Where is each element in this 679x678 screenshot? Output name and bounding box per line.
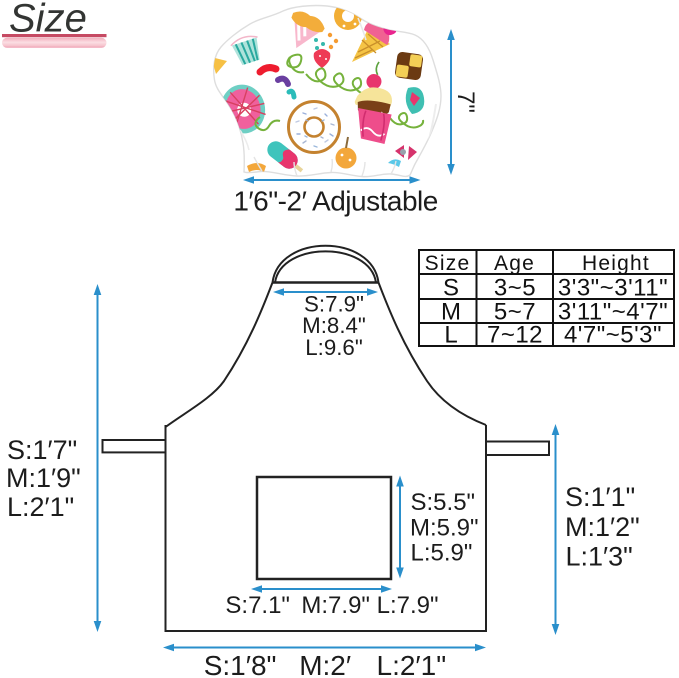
svg-text:L: L xyxy=(444,322,457,349)
svg-text:S:5.5": S:5.5" xyxy=(411,489,476,516)
svg-text:3~5: 3~5 xyxy=(494,275,536,302)
svg-text:3'3"~3'11": 3'3"~3'11" xyxy=(558,275,668,302)
svg-text:Height: Height xyxy=(582,252,650,275)
svg-text:Size: Size xyxy=(425,252,471,275)
svg-text:M:5.9": M:5.9" xyxy=(410,514,479,541)
svg-text:L:2′1": L:2′1" xyxy=(7,492,74,522)
svg-text:1′6"-2′ Adjustable: 1′6"-2′ Adjustable xyxy=(233,186,437,217)
svg-text:S:1′8"M:2′L:2′1": S:1′8"M:2′L:2′1" xyxy=(204,650,446,678)
svg-text:Age: Age xyxy=(494,252,535,275)
svg-text:M:1′9": M:1′9" xyxy=(6,463,81,493)
svg-text:S:7.1"M:7.9"L:7.9": S:7.1"M:7.9"L:7.9" xyxy=(225,592,438,619)
svg-text:7": 7" xyxy=(452,91,479,113)
svg-text:L:5.9": L:5.9" xyxy=(411,539,473,566)
svg-text:7~12: 7~12 xyxy=(487,322,543,349)
svg-text:S:1′7": S:1′7" xyxy=(7,435,77,465)
svg-text:4'7"~5'3": 4'7"~5'3" xyxy=(564,322,662,349)
svg-text:M:1′2": M:1′2" xyxy=(565,512,640,542)
svg-text:L:9.6": L:9.6" xyxy=(305,335,363,360)
svg-text:S: S xyxy=(443,275,459,302)
svg-text:L:1′3": L:1′3" xyxy=(566,541,633,571)
svg-text:S:1′1": S:1′1" xyxy=(565,482,635,512)
